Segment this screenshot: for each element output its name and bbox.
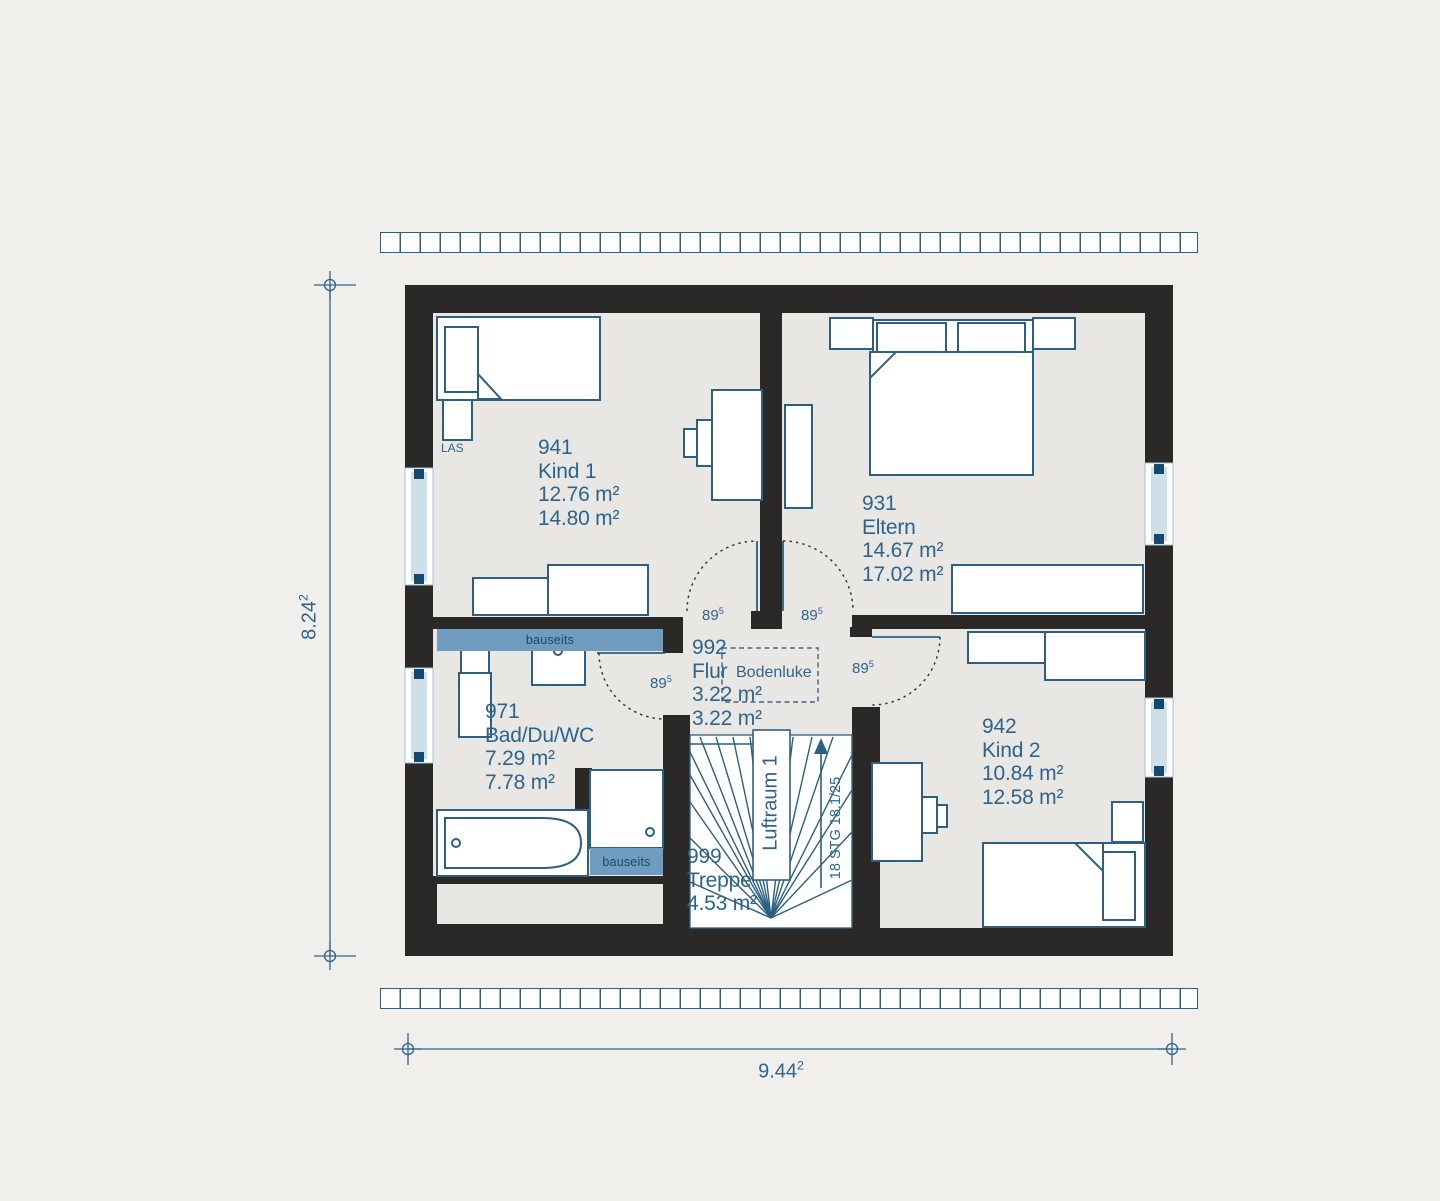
- wall-kind1-bad: [433, 617, 683, 629]
- dimension-width-label: 9.442: [758, 1059, 804, 1084]
- room-label-flur: 992 Flur 3.22 m² 3.22 m²: [692, 636, 762, 730]
- room-area-living: 12.76 m²: [538, 483, 619, 507]
- dresser-kind1-a: [473, 578, 550, 615]
- wardrobe-eltern: [785, 405, 812, 508]
- chair-kind2-seat: [937, 805, 947, 827]
- wall-right: [1145, 285, 1173, 956]
- wall-bottom: [405, 928, 1173, 956]
- room-area-floor: 17.02 m²: [862, 563, 943, 587]
- bauseits-strip-shower: bauseits: [590, 848, 663, 875]
- dim-marker-height-top: [314, 271, 356, 299]
- nightstand-right: [1033, 318, 1075, 349]
- chair-kind1-back: [697, 420, 712, 466]
- nightstand-kind2: [1112, 802, 1143, 842]
- las-label: LAS: [441, 441, 464, 455]
- window-kind2-right: [1145, 698, 1173, 777]
- wall-stub-center: [751, 611, 782, 629]
- wall-stair-left: [663, 715, 690, 928]
- room-label-bad: 971 Bad/Du/WC 7.29 m² 7.78 m²: [485, 700, 594, 794]
- las-cabinet: [443, 400, 472, 440]
- wall-eltern-kind2: [852, 615, 1145, 629]
- floor-plan-drawing: [0, 0, 1440, 1201]
- room-area-floor: 3.22 m²: [692, 707, 762, 731]
- bed-kind1-head: [445, 327, 478, 392]
- wall-top: [405, 285, 1173, 313]
- knee-wall-niche: [437, 884, 663, 924]
- chair-kind1-seat: [684, 429, 697, 457]
- desk-kind2: [872, 763, 922, 861]
- dresser-kind1-b: [548, 565, 648, 615]
- pillow-right: [958, 323, 1025, 353]
- room-name: Bad/Du/WC: [485, 724, 594, 748]
- room-label-treppe: 999 Treppe 4.53 m²: [687, 845, 757, 916]
- dim-marker-width-left: [394, 1033, 422, 1065]
- room-area-living: 10.84 m²: [982, 762, 1063, 786]
- room-number: 942: [982, 715, 1063, 739]
- sideboard-kind2-a: [968, 632, 1045, 663]
- sideboard-kind2-b: [1045, 632, 1145, 680]
- room-number: 931: [862, 492, 943, 516]
- bathtub-inner: [445, 818, 581, 868]
- shower-drain: [646, 828, 654, 836]
- room-area-living: 7.29 m²: [485, 747, 594, 771]
- room-label-eltern: 931 Eltern 14.67 m² 17.02 m²: [862, 492, 943, 586]
- room-name: Kind 2: [982, 739, 1063, 763]
- room-area-floor: 7.78 m²: [485, 771, 594, 795]
- door-width-label-kind2: 895: [852, 659, 874, 677]
- bed-eltern-mattress: [870, 352, 1033, 475]
- floor-plan-canvas: 941 Kind 1 12.76 m² 14.80 m² 931 Eltern …: [0, 0, 1440, 1201]
- wall-left: [405, 285, 433, 956]
- door-width-label-kind1: 895: [702, 606, 724, 624]
- room-name: Eltern: [862, 516, 943, 540]
- bathtub-drain: [452, 839, 460, 847]
- wall-stub-kind2-door: [850, 627, 872, 637]
- room-name: Treppe: [687, 869, 757, 893]
- room-area-floor: 12.58 m²: [982, 786, 1063, 810]
- dim-marker-width-right: [1158, 1033, 1186, 1065]
- room-number: 992: [692, 636, 762, 660]
- luftraum-label: Luftraum 1: [760, 755, 783, 851]
- room-number: 941: [538, 436, 619, 460]
- dim-marker-height-bottom: [314, 942, 356, 970]
- window-kind1-left: [405, 468, 433, 585]
- pillow-left: [877, 323, 946, 353]
- wall-kind1-eltern: [760, 313, 782, 611]
- dresser-eltern: [952, 565, 1143, 613]
- stair-spec-label: 18 STG 18.1/25: [828, 777, 844, 879]
- wall-stub-bad-door: [663, 629, 683, 653]
- dimension-height-label: 8.242: [297, 594, 322, 640]
- room-area-living: 3.22 m²: [692, 683, 762, 707]
- room-area-living: 14.67 m²: [862, 539, 943, 563]
- room-label-kind2: 942 Kind 2 10.84 m² 12.58 m²: [982, 715, 1063, 809]
- room-area-living: 4.53 m²: [687, 892, 757, 916]
- room-area-floor: 14.80 m²: [538, 507, 619, 531]
- room-number: 999: [687, 845, 757, 869]
- door-width-label-eltern: 895: [801, 606, 823, 624]
- door-width-label-bad: 895: [650, 674, 672, 692]
- desk-kind1: [712, 390, 762, 500]
- nightstand-left: [830, 318, 873, 349]
- window-eltern-right: [1145, 463, 1173, 545]
- chair-kind2-back: [922, 797, 937, 833]
- room-number: 971: [485, 700, 594, 724]
- bauseits-strip-bad: bauseits: [437, 629, 663, 651]
- bodenluke-label: Bodenluke: [736, 664, 812, 682]
- bed-kind2-head: [1103, 852, 1135, 920]
- room-label-kind1: 941 Kind 1 12.76 m² 14.80 m²: [538, 436, 619, 530]
- room-name: Kind 1: [538, 460, 619, 484]
- window-bad-left: [405, 668, 433, 763]
